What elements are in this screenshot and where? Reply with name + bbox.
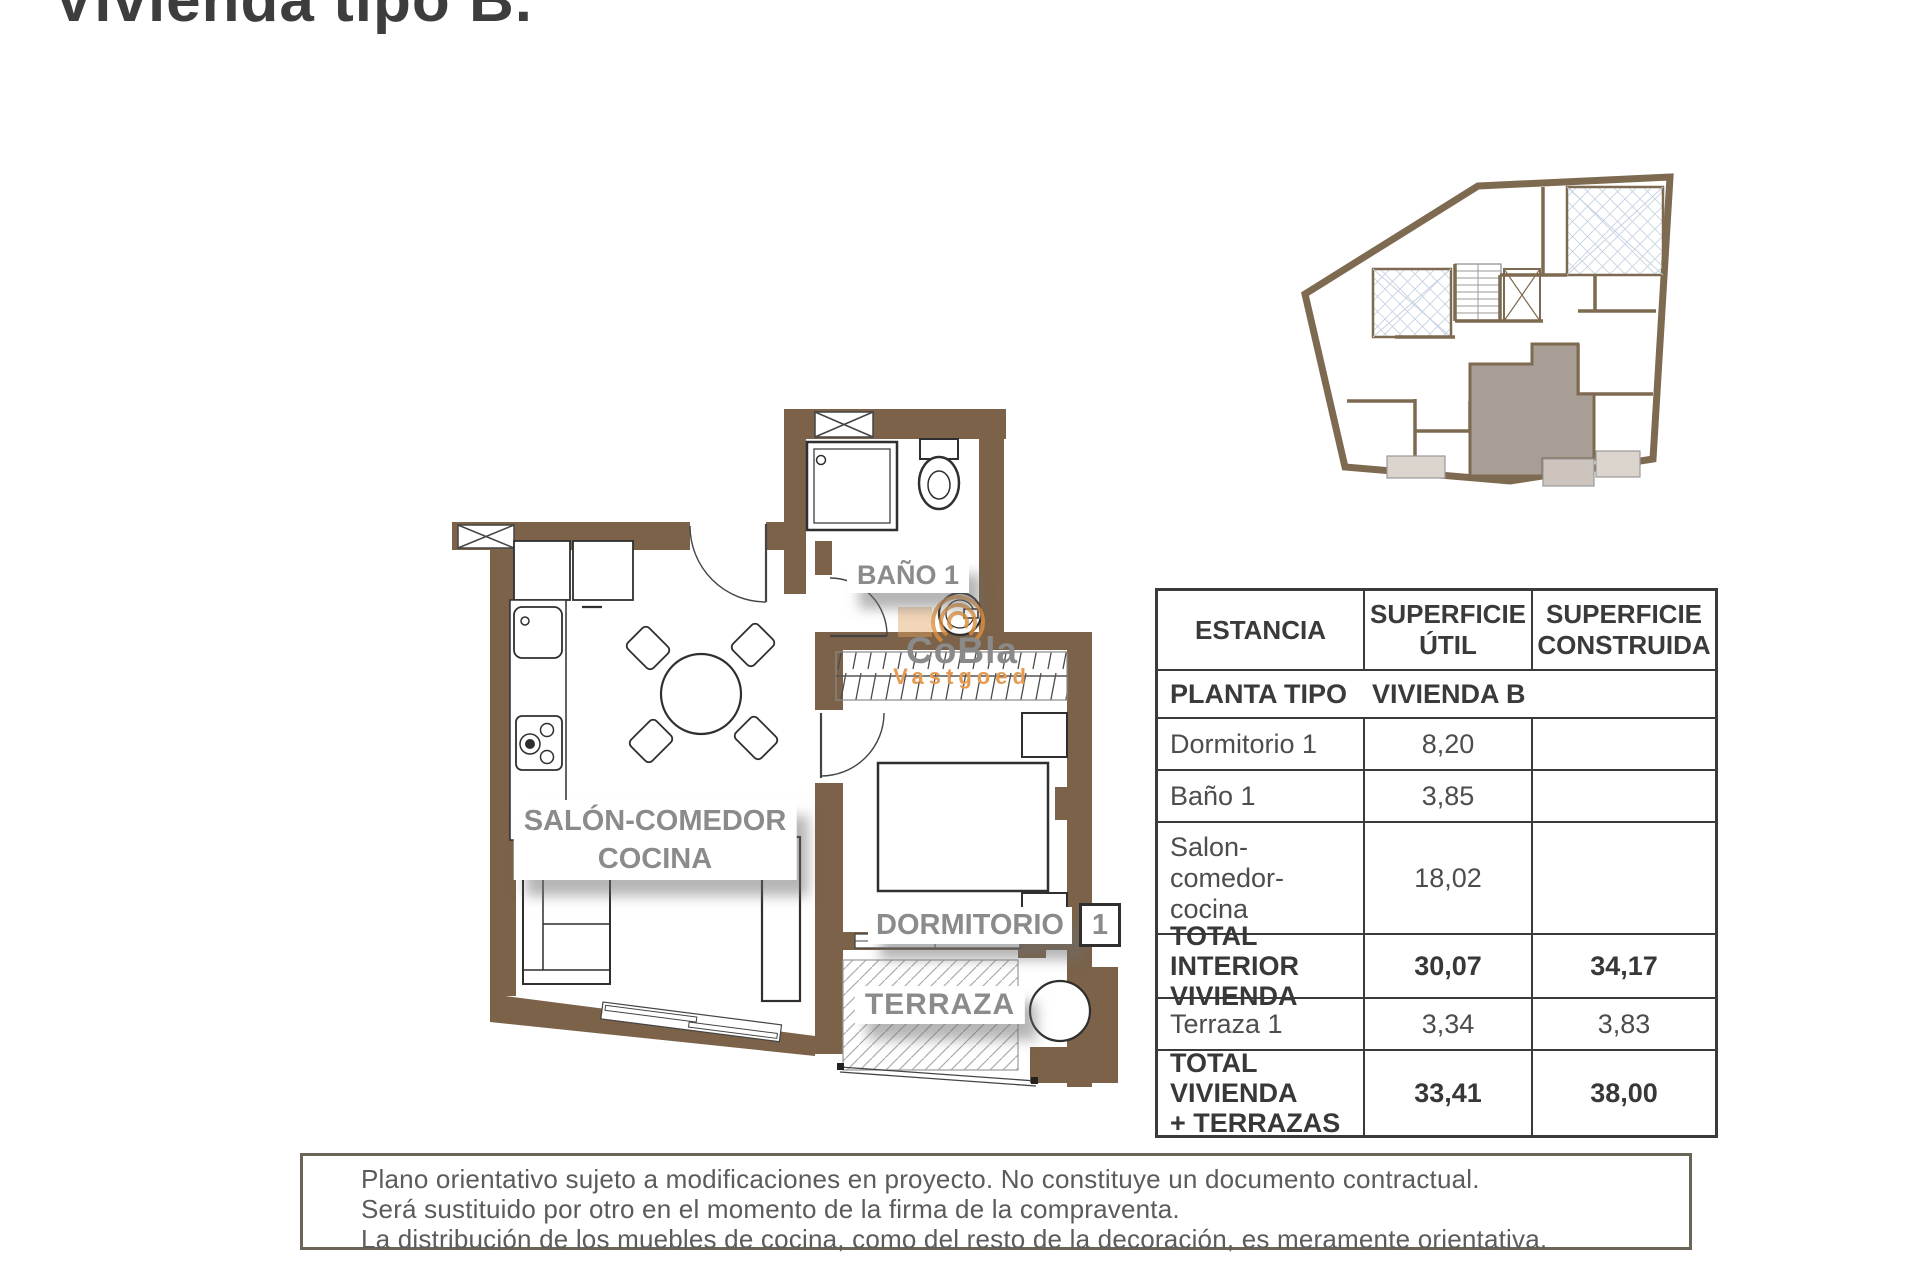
floorplan-sheet: Vivienda tipo B. bbox=[0, 0, 1920, 1280]
cell-util: 30,07 bbox=[1363, 935, 1531, 997]
table-row: Terraza 1 3,34 3,83 bbox=[1158, 997, 1715, 1049]
bedroom-door-icon bbox=[821, 713, 884, 778]
entrance-door-icon bbox=[690, 524, 766, 602]
bed bbox=[878, 763, 1048, 891]
label-bedroom-number: 1 bbox=[1079, 903, 1121, 947]
table-subheader-row: PLANTA TIPO VIVIENDA B bbox=[1158, 669, 1715, 717]
toilet-icon bbox=[919, 439, 959, 509]
terrace-column bbox=[1030, 981, 1090, 1041]
label-living-room: SALÓN-COMEDOR COCINA bbox=[514, 800, 797, 880]
page-title-clip: Vivienda tipo B. bbox=[53, 0, 533, 38]
cell-util: 33,41 bbox=[1363, 1051, 1531, 1135]
cell-construida bbox=[1531, 823, 1715, 933]
watermark-subtitle: Vastgoed bbox=[893, 664, 1031, 690]
cell-construida bbox=[1531, 719, 1715, 769]
table-row: Baño 1 3,85 bbox=[1158, 769, 1715, 821]
subheader-planta: PLANTA TIPO bbox=[1170, 679, 1347, 710]
elevator-icon bbox=[1504, 269, 1540, 321]
cell-construida: 34,17 bbox=[1531, 935, 1715, 997]
cell-construida: 3,83 bbox=[1531, 999, 1715, 1049]
disclaimer-box: Plano orientativo sujeto a modificacione… bbox=[300, 1153, 1692, 1250]
disclaimer-line1: Plano orientativo sujeto a modificacione… bbox=[361, 1164, 1679, 1194]
header-estancia: ESTANCIA bbox=[1158, 591, 1363, 669]
label-terrace: TERRAZA bbox=[855, 986, 1025, 1024]
highlighted-unit bbox=[1470, 344, 1594, 476]
label-bedroom: DORMITORIO 1 bbox=[868, 903, 1121, 947]
disclaimer-line2: Será sustituido por otro en el momento d… bbox=[361, 1194, 1679, 1224]
cell-util: 3,34 bbox=[1363, 999, 1531, 1049]
cell-util: 3,85 bbox=[1363, 771, 1531, 821]
cell-construida bbox=[1531, 771, 1715, 821]
hob-icon bbox=[516, 716, 562, 770]
stairs-icon bbox=[1455, 264, 1501, 320]
cell-construida: 38,00 bbox=[1531, 1051, 1715, 1135]
table-header-row: ESTANCIA SUPERFICIE ÚTIL SUPERFICIE CONS… bbox=[1158, 591, 1715, 669]
page-title: Vivienda tipo B. bbox=[53, 0, 533, 32]
cell-estancia: TOTAL INTERIOR VIVIENDA bbox=[1158, 935, 1363, 997]
header-util: SUPERFICIE ÚTIL bbox=[1363, 591, 1531, 669]
building-overview-svg bbox=[1295, 168, 1735, 500]
subheader-vivienda: VIVIENDA B bbox=[1372, 679, 1526, 710]
areas-table: ESTANCIA SUPERFICIE ÚTIL SUPERFICIE CONS… bbox=[1155, 588, 1718, 1138]
cell-estancia: Salon- comedor- cocina bbox=[1158, 823, 1363, 933]
table-row-total-vivienda: TOTAL VIVIENDA + TERRAZAS 33,41 38,00 bbox=[1158, 1049, 1715, 1135]
cell-util: 8,20 bbox=[1363, 719, 1531, 769]
label-living-line1: SALÓN-COMEDOR bbox=[524, 802, 787, 840]
cell-estancia: Baño 1 bbox=[1158, 771, 1363, 821]
table-row-total-interior: TOTAL INTERIOR VIVIENDA 30,07 34,17 bbox=[1158, 933, 1715, 997]
kitchen-counter bbox=[510, 541, 633, 840]
label-living-line2: COCINA bbox=[524, 840, 787, 878]
disclaimer-line3: La distribución de los muebles de cocina… bbox=[361, 1224, 1679, 1254]
nightstand bbox=[1022, 713, 1067, 757]
cell-estancia: TOTAL VIVIENDA + TERRAZAS bbox=[1158, 1051, 1363, 1135]
header-construida: SUPERFICIE CONSTRUIDA bbox=[1531, 591, 1715, 669]
cell-estancia: Dormitorio 1 bbox=[1158, 719, 1363, 769]
shower-icon bbox=[807, 442, 897, 530]
dining-table bbox=[625, 622, 780, 765]
label-bedroom-text: DORMITORIO bbox=[868, 907, 1072, 944]
table-row: Salon- comedor- cocina 18,02 bbox=[1158, 821, 1715, 933]
label-bathroom: BAÑO 1 bbox=[847, 558, 969, 593]
cell-util: 18,02 bbox=[1363, 823, 1531, 933]
table-row: Dormitorio 1 8,20 bbox=[1158, 717, 1715, 769]
cell-estancia: Terraza 1 bbox=[1158, 999, 1363, 1049]
